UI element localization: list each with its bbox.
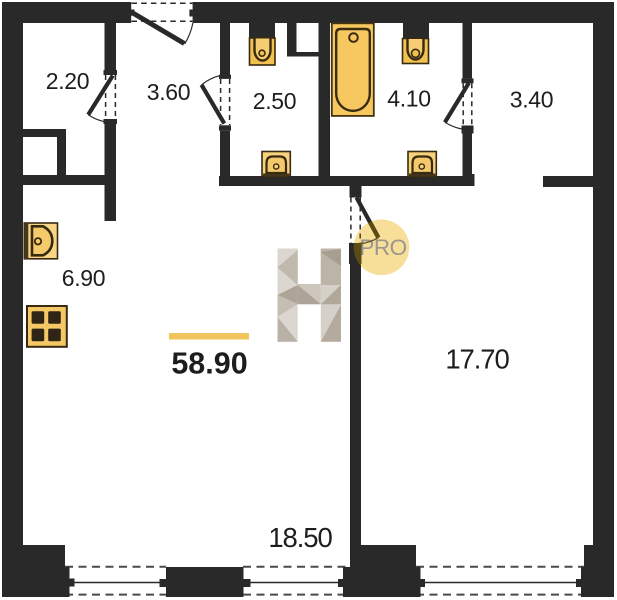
svg-text:2.50: 2.50 (253, 88, 297, 114)
svg-text:17.70: 17.70 (445, 344, 509, 375)
svg-text:18.50: 18.50 (268, 522, 332, 553)
svg-text:3.40: 3.40 (510, 87, 554, 113)
svg-text:2.20: 2.20 (46, 68, 90, 94)
svg-text:PRO: PRO (359, 235, 406, 260)
svg-text:58.90: 58.90 (171, 347, 247, 381)
svg-text:4.10: 4.10 (387, 86, 431, 112)
svg-text:3.60: 3.60 (147, 79, 191, 105)
svg-text:6.90: 6.90 (62, 265, 106, 291)
